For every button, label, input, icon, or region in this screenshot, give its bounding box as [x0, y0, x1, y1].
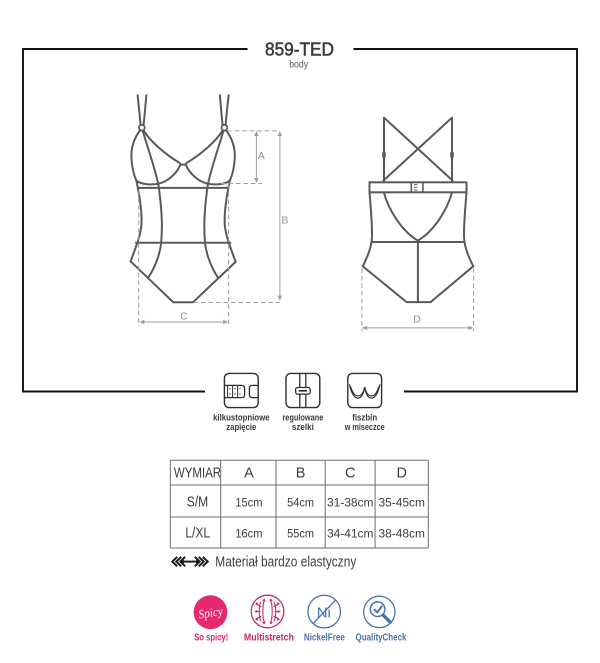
svg-text:D: D [413, 314, 421, 326]
svg-text:35-45cm: 35-45cm [378, 495, 425, 509]
svg-text:L/XL: L/XL [185, 526, 210, 542]
svg-text:WYMIAR: WYMIAR [174, 465, 221, 481]
svg-text:54cm: 54cm [287, 495, 314, 509]
svg-text:A: A [244, 465, 254, 481]
svg-text:Materiał bardzo elastyczny: Materiał bardzo elastyczny [215, 554, 356, 571]
svg-text:16cm: 16cm [235, 526, 262, 540]
svg-text:B: B [296, 465, 306, 481]
svg-text:szelki: szelki [292, 422, 314, 432]
svg-text:D: D [396, 465, 406, 481]
svg-text:Multistretch: Multistretch [244, 631, 294, 643]
svg-text:C: C [345, 465, 355, 481]
svg-text:55cm: 55cm [287, 526, 314, 540]
svg-text:38-48cm: 38-48cm [378, 526, 425, 540]
svg-text:QualityCheck: QualityCheck [356, 631, 407, 643]
svg-text:zapięcie: zapięcie [226, 422, 256, 432]
svg-text:859-TED: 859-TED [265, 38, 334, 59]
svg-text:body: body [289, 60, 308, 71]
svg-text:regulowane: regulowane [282, 412, 323, 422]
svg-text:B: B [281, 215, 288, 227]
svg-text:C: C [180, 310, 188, 322]
svg-text:So spicy!: So spicy! [194, 631, 228, 643]
svg-text:Ni: Ni [317, 604, 331, 621]
svg-text:34-41cm: 34-41cm [327, 526, 374, 540]
svg-text:A: A [258, 150, 265, 162]
svg-text:fiszbin: fiszbin [352, 412, 377, 422]
svg-text:kilkustopniowe: kilkustopniowe [213, 412, 269, 422]
svg-text:31-38cm: 31-38cm [327, 495, 374, 509]
svg-text:15cm: 15cm [235, 495, 262, 509]
svg-text:w miseczce: w miseczce [344, 422, 385, 432]
svg-text:S/M: S/M [187, 495, 209, 511]
svg-text:NickelFree: NickelFree [304, 631, 345, 643]
